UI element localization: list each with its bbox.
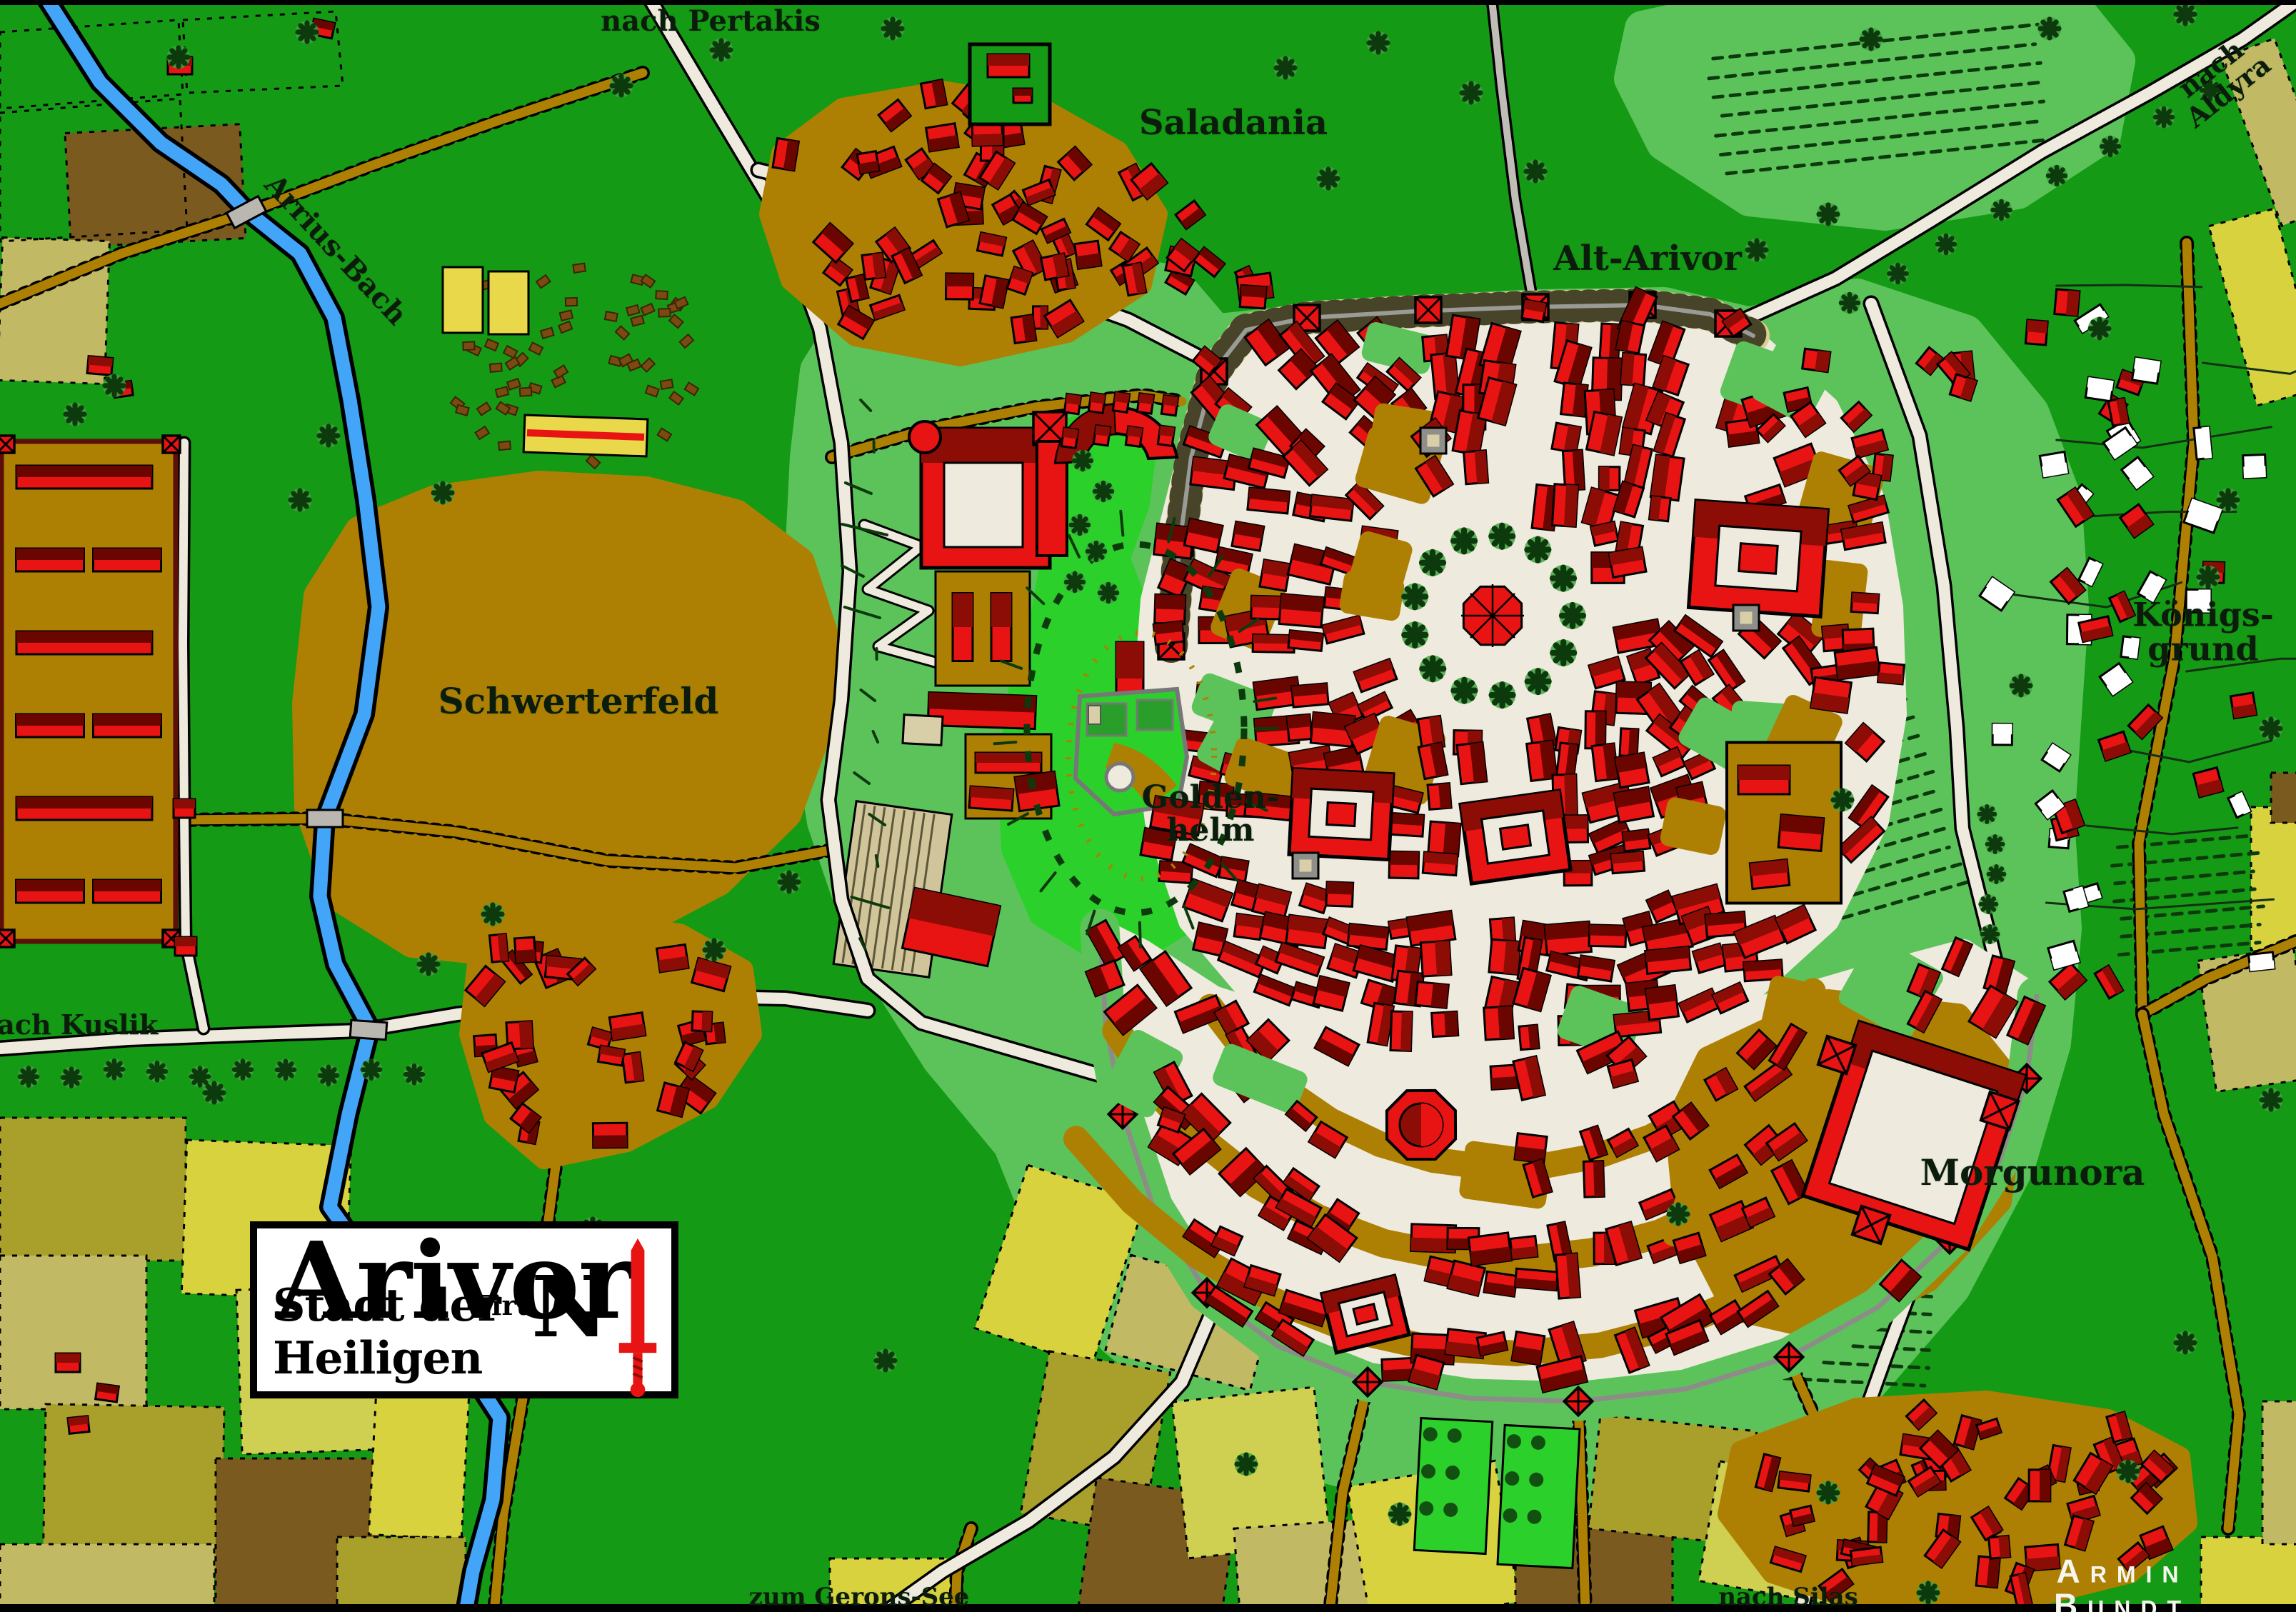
fantasy-city-map: nach PertakisArrius-BachSaladaniaAlt-Ari… [0, 0, 2296, 1612]
map-title-box: Arivor FiruN Stadt der Heiligen [250, 1221, 678, 1398]
map-subtitle: Stadt der Heiligen [273, 1278, 671, 1384]
